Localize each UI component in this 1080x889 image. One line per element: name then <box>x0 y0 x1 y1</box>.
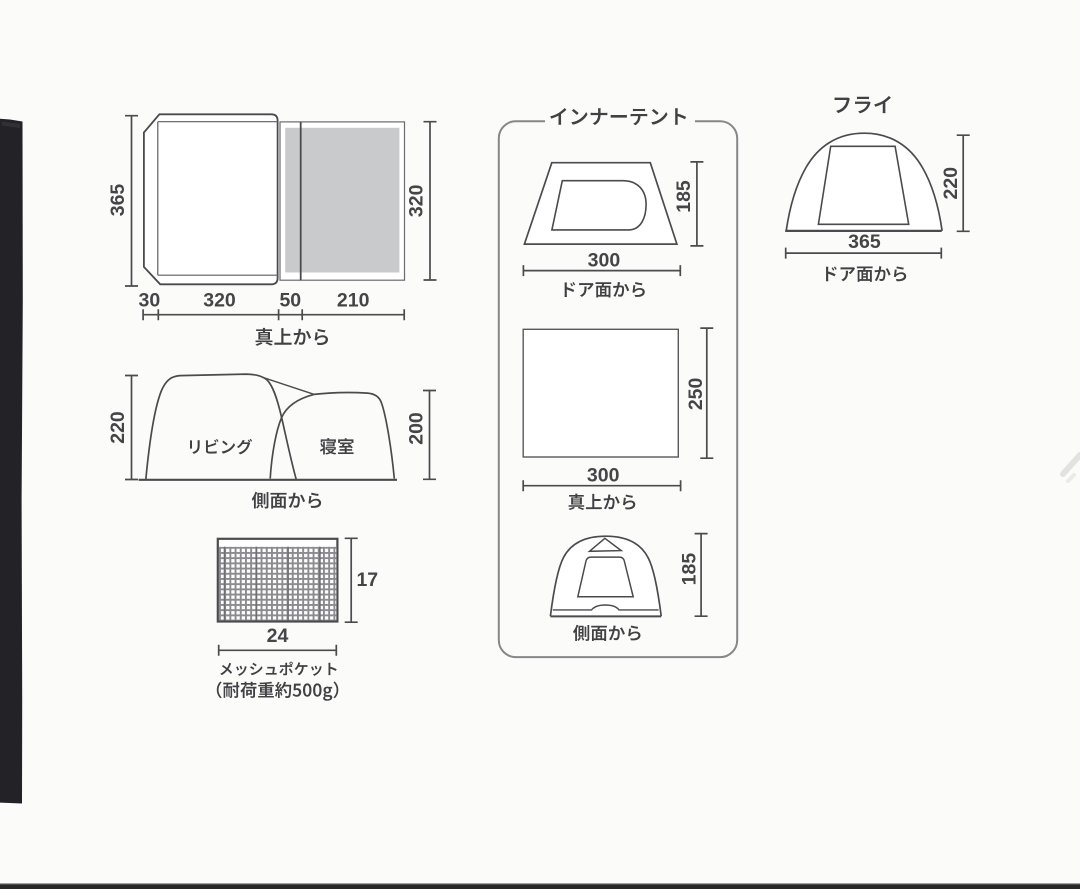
svg-text:30: 30 <box>139 290 161 312</box>
svg-text:365: 365 <box>848 231 881 253</box>
svg-text:320: 320 <box>203 290 236 312</box>
svg-text:200: 200 <box>405 412 427 445</box>
svg-text:365: 365 <box>107 184 129 217</box>
svg-text:220: 220 <box>107 411 129 444</box>
svg-text:300: 300 <box>588 250 621 272</box>
svg-text:185: 185 <box>678 553 700 586</box>
svg-text:250: 250 <box>685 377 707 410</box>
svg-text:210: 210 <box>337 290 370 312</box>
svg-text:300: 300 <box>587 465 620 487</box>
svg-text:24: 24 <box>267 625 289 647</box>
svg-text:50: 50 <box>279 290 301 312</box>
svg-text:17: 17 <box>356 569 378 591</box>
svg-text:220: 220 <box>940 167 962 200</box>
svg-text:320: 320 <box>405 184 427 217</box>
svg-text:185: 185 <box>673 180 695 213</box>
